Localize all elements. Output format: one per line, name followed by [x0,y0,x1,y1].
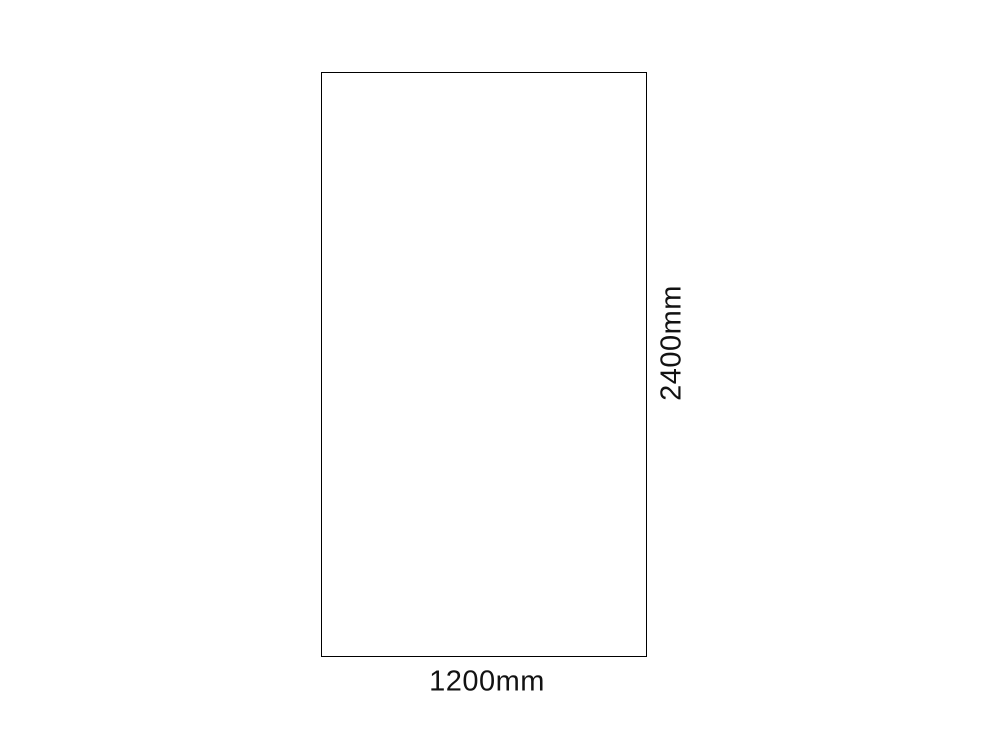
width-dimension-label: 1200mm [429,666,545,699]
dimension-diagram: 2400mm 1200mm [0,0,1000,755]
height-dimension-label: 2400mm [656,285,689,401]
panel-rectangle [321,72,647,657]
